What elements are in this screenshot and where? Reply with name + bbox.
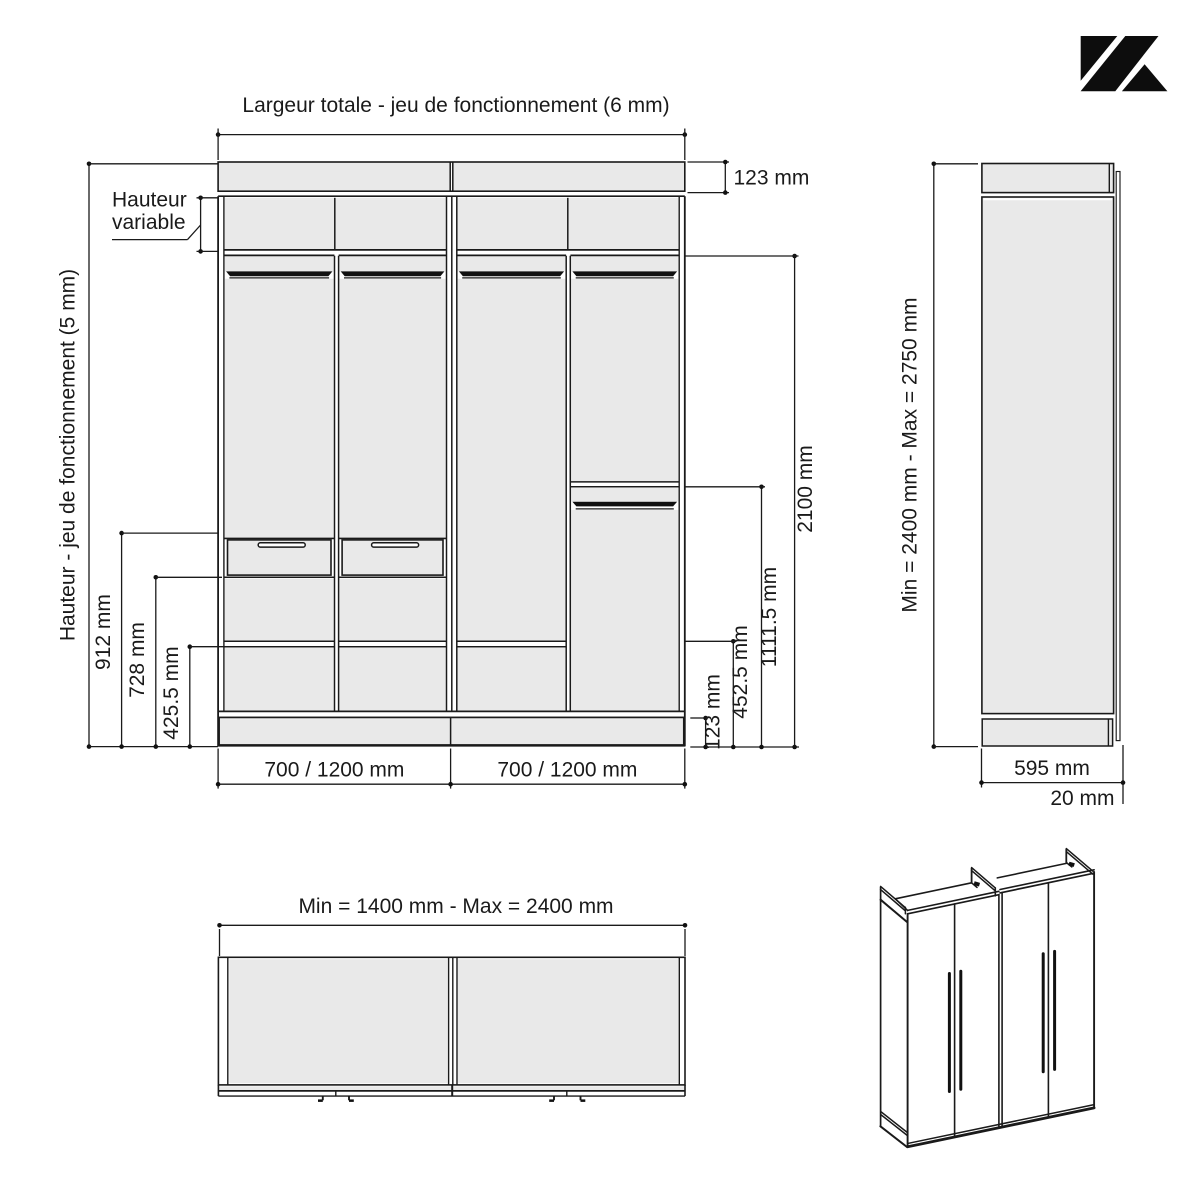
svg-text:Hauteur - jeu de fonctionnemen: Hauteur - jeu de fonctionnement (5 mm) — [57, 269, 80, 641]
svg-text:700 / 1200 mm: 700 / 1200 mm — [497, 759, 637, 782]
svg-text:123 mm: 123 mm — [702, 674, 725, 750]
svg-text:728 mm: 728 mm — [126, 622, 149, 698]
svg-text:123 mm: 123 mm — [734, 167, 810, 190]
svg-text:1111.5 mm: 1111.5 mm — [758, 567, 781, 667]
svg-text:Largeur totale - jeu de foncti: Largeur totale - jeu de fonctionnement (… — [242, 94, 669, 117]
svg-text:452.5 mm: 452.5 mm — [729, 625, 752, 718]
svg-text:Min = 2400 mm - Max = 2750 mm: Min = 2400 mm - Max = 2750 mm — [899, 297, 922, 612]
svg-text:595 mm: 595 mm — [1014, 757, 1090, 780]
svg-text:912 mm: 912 mm — [92, 594, 115, 670]
svg-text:20 mm: 20 mm — [1050, 787, 1114, 810]
svg-text:425.5 mm: 425.5 mm — [160, 646, 183, 739]
svg-text:variable: variable — [112, 211, 186, 234]
svg-text:Min = 1400 mm - Max = 2400 mm: Min = 1400 mm - Max = 2400 mm — [298, 895, 613, 918]
svg-text:2100 mm: 2100 mm — [794, 445, 817, 533]
svg-text:700 / 1200 mm: 700 / 1200 mm — [264, 759, 404, 782]
svg-text:Hauteur: Hauteur — [112, 189, 187, 212]
